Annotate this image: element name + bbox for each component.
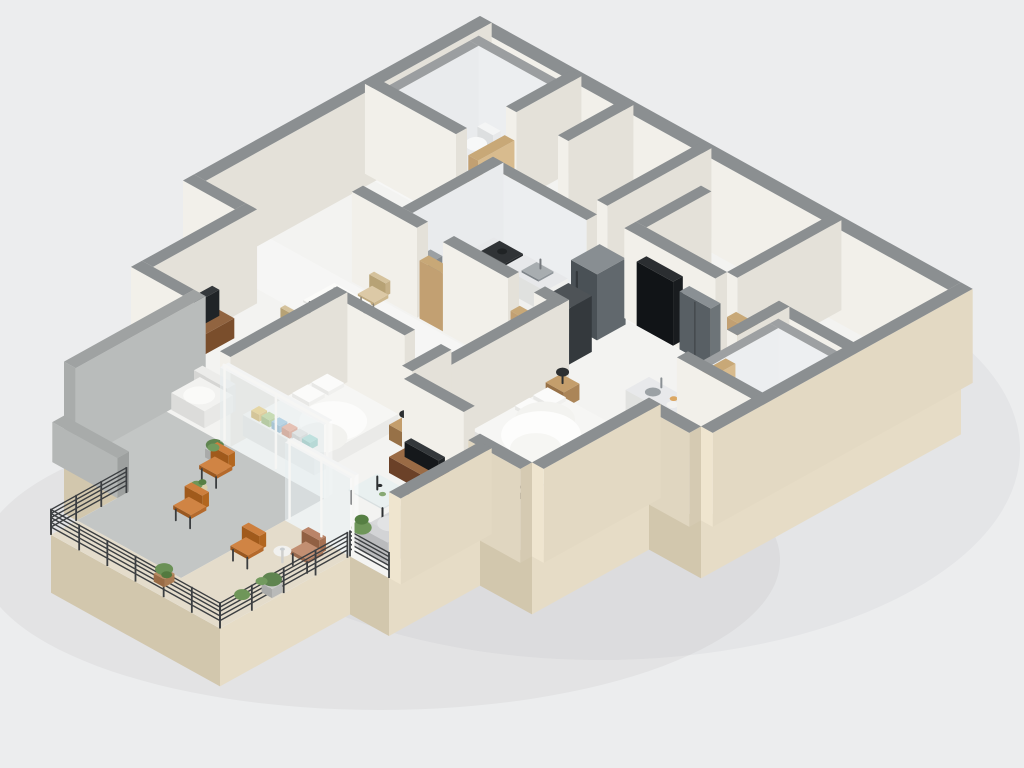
outer-wall-se-upper-side [701, 426, 713, 526]
lamp2-shade [556, 368, 569, 377]
island2-plate [666, 401, 678, 408]
island2-sink [645, 388, 661, 397]
side-table-cup [280, 548, 285, 551]
planter-2-leaves-c [234, 589, 250, 600]
armchair-cushion [183, 386, 215, 404]
plant-tall-leaves-b [355, 515, 369, 525]
island2-bread [670, 396, 678, 401]
balcony-table-plant-b [198, 479, 206, 485]
planter-2-leaves-b [256, 577, 268, 585]
coffee-table-plant [379, 492, 386, 496]
living-wall-e-side [389, 492, 401, 584]
floorplan-svg [0, 0, 1024, 768]
planter-3-leaves-b [161, 571, 172, 578]
outer-wall-se-lower-side [520, 462, 532, 562]
floorplan-page [0, 0, 1024, 768]
planter-1-leaves-b [208, 444, 220, 452]
outer-wall-se-step-side [689, 426, 701, 526]
stove-pot [497, 248, 507, 254]
outer-wall-se-mid-side [532, 462, 544, 562]
coffee-table-bottle [377, 484, 382, 487]
